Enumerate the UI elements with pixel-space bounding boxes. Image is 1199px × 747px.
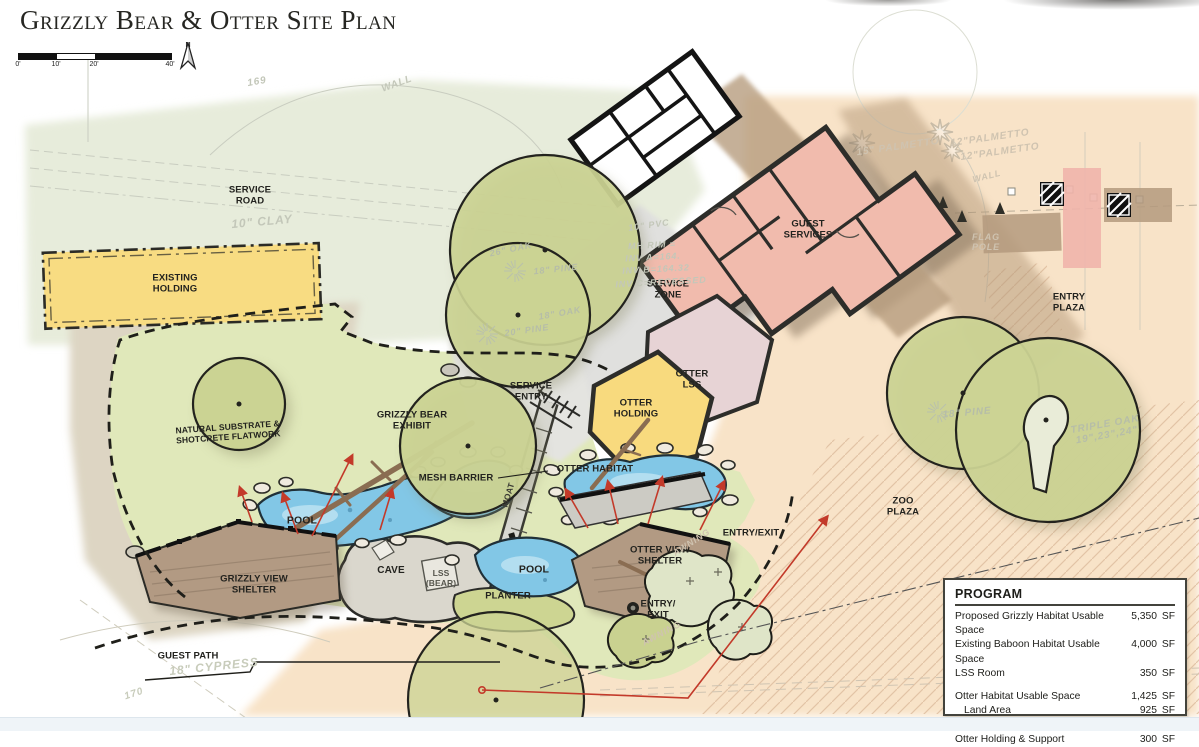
program-row: Otter Holding & Support 300 SF xyxy=(955,733,1175,747)
label-mesh-barrier: MESH BARRIER xyxy=(419,472,494,483)
program-row-value: 350 xyxy=(1117,667,1157,681)
label-planter: PLANTER xyxy=(485,590,531,601)
program-row-label: Proposed Grizzly Habitat Usable Space xyxy=(955,610,1117,638)
survey-flag-pole: FLAG POLE xyxy=(972,233,1000,253)
program-row-label: Otter Holding & Support xyxy=(955,733,1117,747)
program-row-label: Otter Habitat Usable Space xyxy=(955,690,1117,704)
program-row: Proposed Grizzly Habitat Usable Space 5,… xyxy=(955,610,1175,638)
label-service-road: SERVICE ROAD xyxy=(229,185,271,208)
label-pool-otter: POOL xyxy=(519,564,549,577)
scale-tick: 10' xyxy=(51,61,60,68)
scale-bar-graphic xyxy=(18,53,172,60)
program-row-label: LSS Room xyxy=(955,667,1117,681)
program-header: PROGRAM xyxy=(955,587,1175,606)
program-legend: PROGRAM Proposed Grizzly Habitat Usable … xyxy=(943,578,1187,716)
program-row-value: 5,350 xyxy=(1117,610,1157,638)
program-row: Existing Baboon Habitat Usable Space 4,0… xyxy=(955,638,1175,666)
program-row-unit: SF xyxy=(1157,690,1175,704)
scale-bar: 0' 10' 20' 40' xyxy=(18,53,170,73)
page-title: Grizzly Bear & Otter Site Plan xyxy=(20,6,397,36)
label-grizzly-view-shelter: GRIZZLY VIEW SHELTER xyxy=(220,574,288,597)
label-pool-grizzly: POOL xyxy=(287,515,317,528)
program-row-unit: SF xyxy=(1157,610,1175,638)
label-lss-bear: LSS (BEAR) xyxy=(426,568,456,588)
program-row-value: 4,000 xyxy=(1117,638,1157,666)
label-entry-exit-south: ENTRY/ EXIT xyxy=(640,599,675,622)
scale-tick: 20' xyxy=(89,61,98,68)
program-row-label: Existing Baboon Habitat Usable Space xyxy=(955,638,1117,666)
label-guest-services: GUEST SERVICES xyxy=(784,219,833,242)
program-row-value: 1,425 xyxy=(1117,690,1157,704)
label-existing-holding: EXISTING HOLDING xyxy=(152,273,197,296)
program-row: LSS Room 350 SF xyxy=(955,667,1175,681)
gate-icon xyxy=(627,602,639,614)
bottom-strip xyxy=(0,717,1199,731)
label-grizzly-bear-exhibit: GRIZZLY BEAR EXHIBIT xyxy=(377,410,447,433)
program-row-unit: SF xyxy=(1157,733,1175,747)
label-zoo-plaza: ZOO PLAZA xyxy=(887,496,919,519)
label-cave: CAVE xyxy=(377,565,404,577)
label-entry-plaza: ENTRY PLAZA xyxy=(1053,292,1085,315)
scale-tick: 0' xyxy=(15,61,20,68)
label-service-entry: SERVICE ENTRY xyxy=(510,381,552,404)
site-plan-canvas: Grizzly Bear & Otter Site Plan 0' 10' 20… xyxy=(0,0,1199,730)
north-arrow-icon: N xyxy=(178,42,198,78)
label-otter-habitat: OTTER HABITAT xyxy=(557,463,633,474)
program-row-unit: SF xyxy=(1157,667,1175,681)
label-otter-holding: OTTER HOLDING xyxy=(614,398,659,421)
label-otter-lss: OTTER LSS xyxy=(676,369,709,392)
program-row-value: 300 xyxy=(1117,733,1157,747)
program-row-unit: SF xyxy=(1157,638,1175,666)
label-entry-exit-east: ENTRY/EXIT xyxy=(723,527,780,538)
program-row: Otter Habitat Usable Space 1,425 SF xyxy=(955,690,1175,704)
scale-tick: 40' xyxy=(165,61,174,68)
